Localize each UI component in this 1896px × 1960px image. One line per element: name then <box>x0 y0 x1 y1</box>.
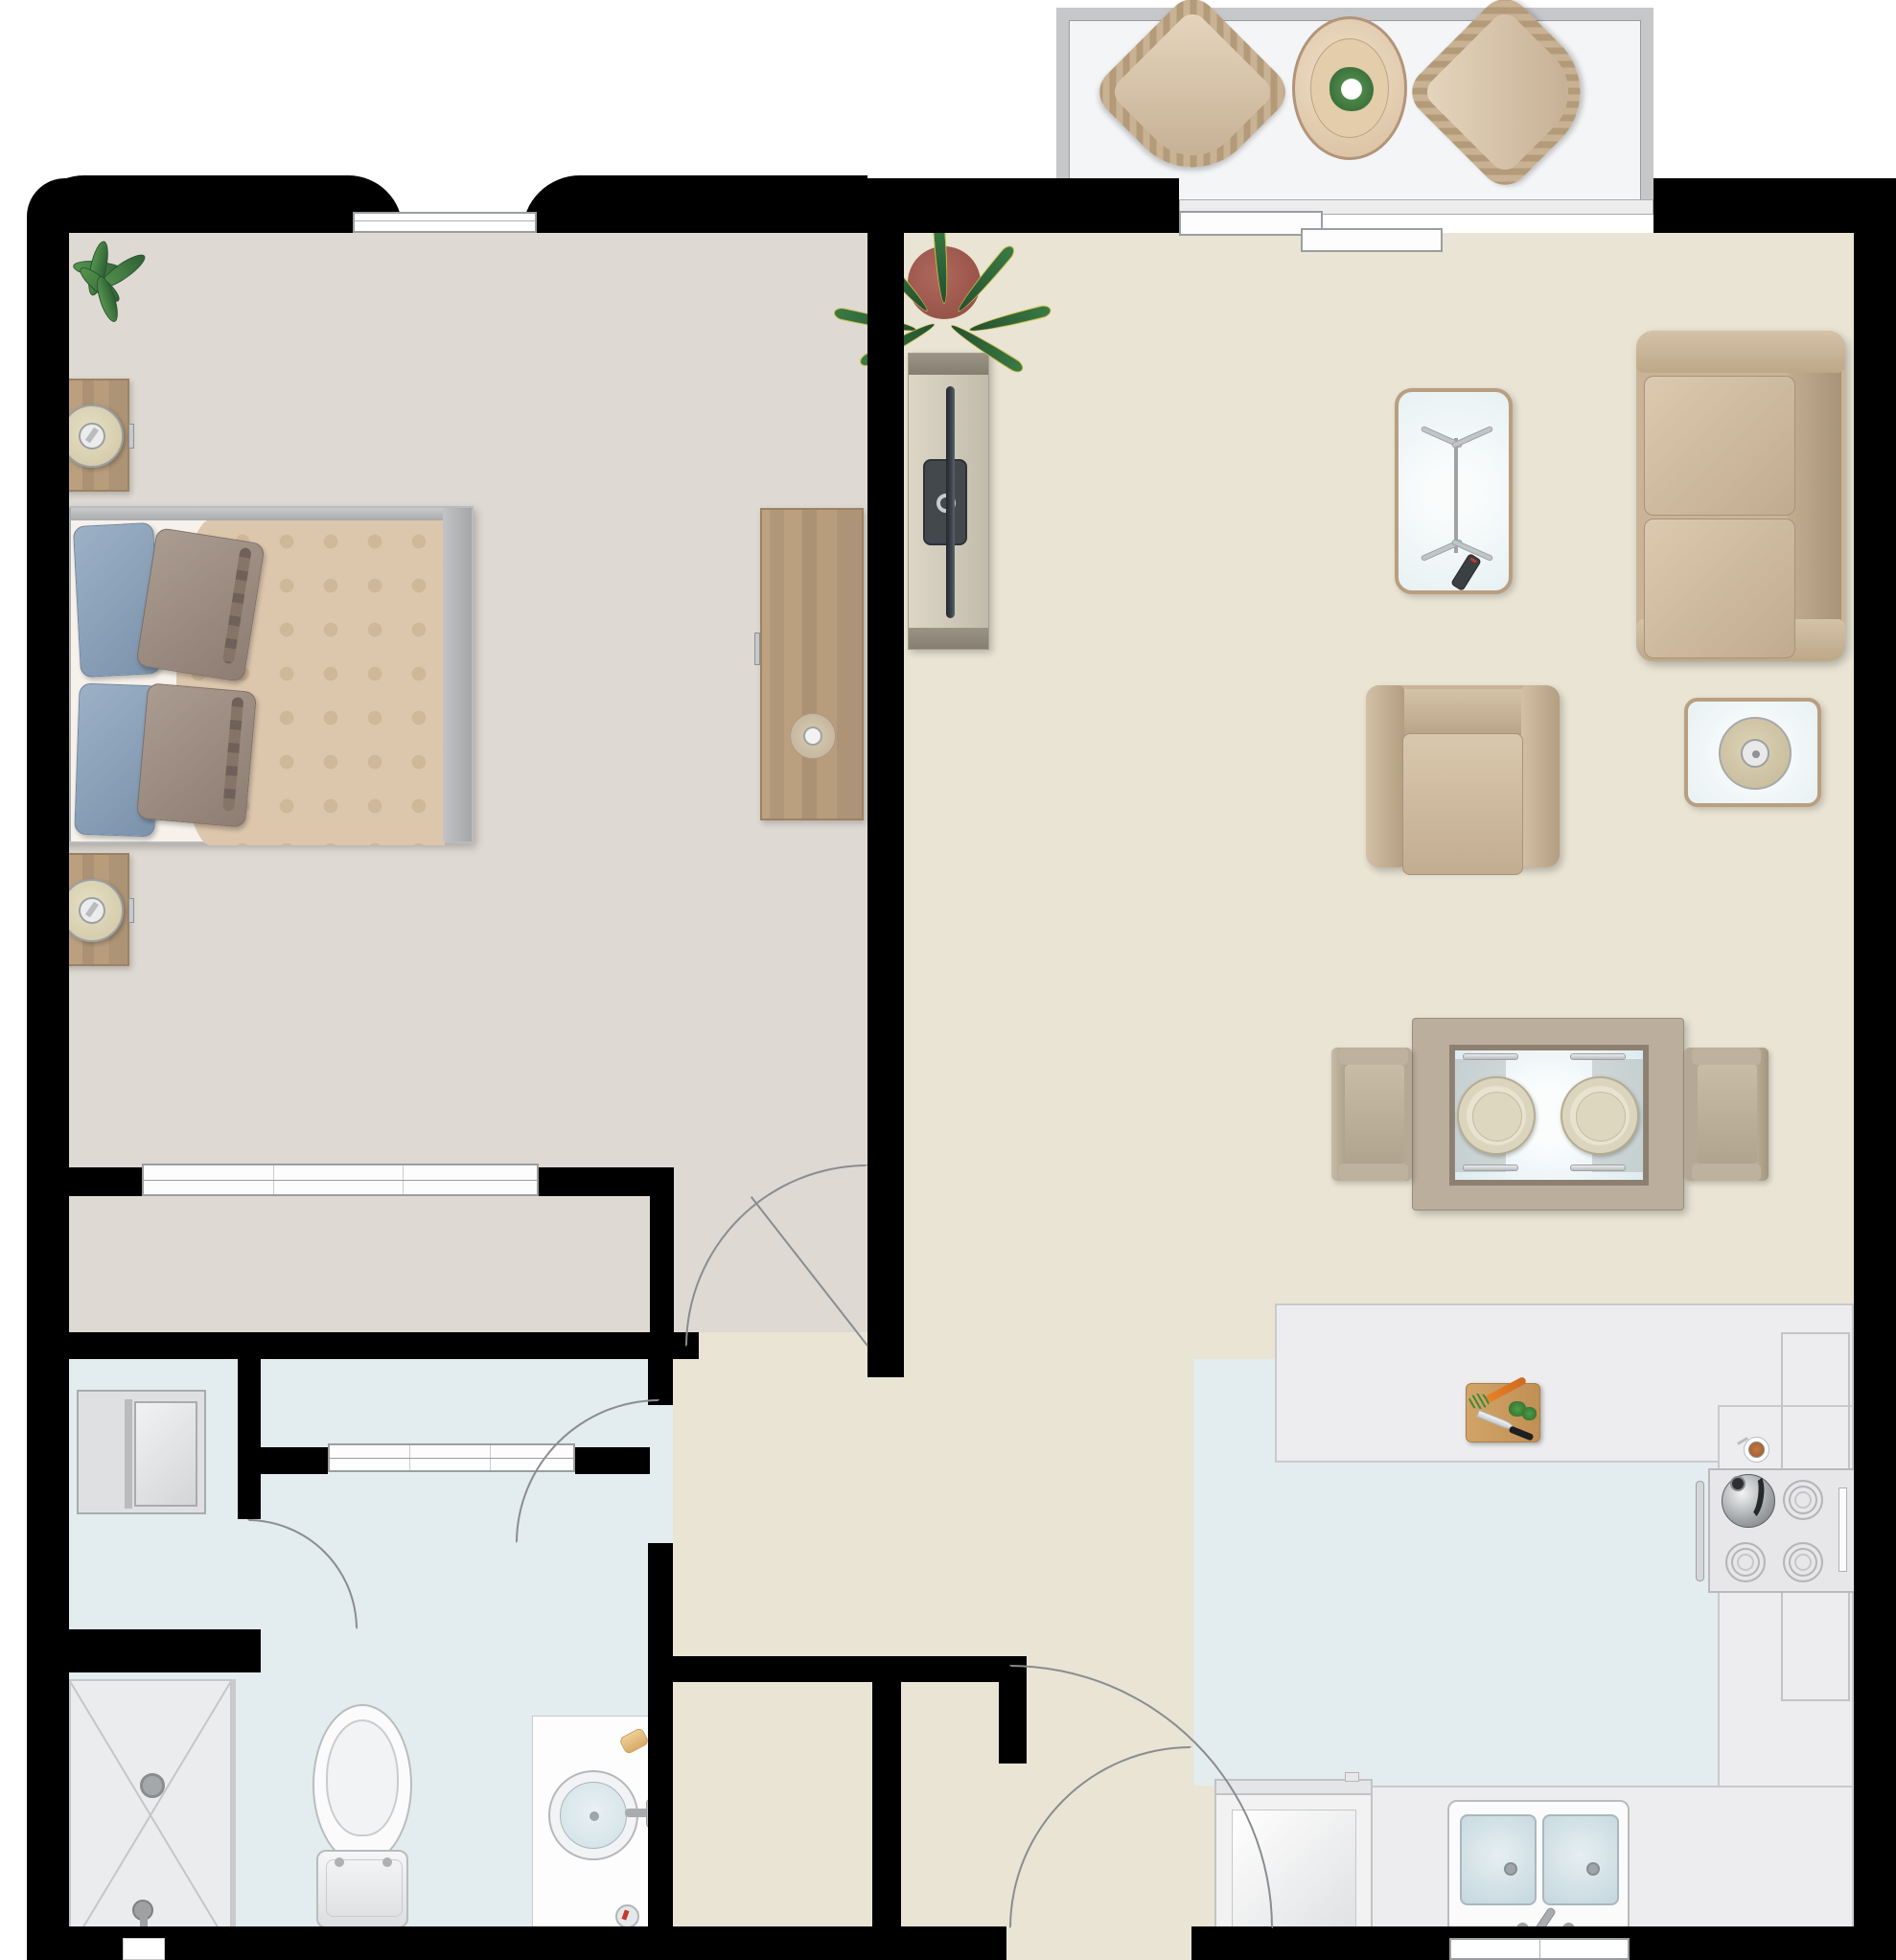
armchair-armrest <box>1366 685 1404 867</box>
dining-chair-right <box>1684 1048 1769 1181</box>
lamp-finial <box>1741 739 1769 768</box>
toilet-seat-hinge <box>335 1857 344 1867</box>
chair-armrest <box>1692 1164 1761 1181</box>
coffee-table <box>1395 388 1513 594</box>
toilet-seat <box>326 1719 399 1836</box>
sink-drain <box>1504 1862 1517 1876</box>
coffee-cup <box>1748 1441 1765 1458</box>
armchair-backrest <box>1385 689 1540 739</box>
wall-bedroom-living <box>867 178 904 1377</box>
lamp-finial <box>79 897 105 924</box>
knife <box>1570 1164 1626 1171</box>
wall-bathroom-east <box>648 1543 673 1950</box>
lamp-finial <box>79 423 105 450</box>
wall-north-bedroom <box>27 175 403 233</box>
vanity-basin <box>560 1782 627 1849</box>
wall-west <box>27 178 69 1960</box>
dresser-cup <box>803 726 822 746</box>
shower-glass-edge <box>232 1679 236 1950</box>
sofa-cushion <box>1644 519 1795 658</box>
patio-table <box>1292 16 1407 160</box>
kettle-lid <box>1730 1476 1746 1491</box>
table-lamp <box>60 404 124 468</box>
kitchen-window <box>1449 1938 1630 1960</box>
armchair-armrest <box>1521 685 1560 867</box>
sink-drain <box>1586 1862 1600 1876</box>
living-room-plant-pot <box>908 246 981 319</box>
sofa-backrest <box>1788 356 1841 636</box>
wall-north-bedroom <box>522 175 867 233</box>
pillow-taupe <box>136 682 257 827</box>
fork <box>1463 1053 1518 1060</box>
dresser <box>760 508 864 820</box>
washing-machine <box>77 1390 206 1514</box>
floor-plan <box>0 0 1896 1960</box>
wall-bathroom-east <box>648 1359 673 1405</box>
armchair <box>1366 685 1560 867</box>
toilet-seat-hinge <box>382 1857 392 1867</box>
chair-armrest <box>1692 1048 1761 1065</box>
shower-drain <box>140 1773 165 1798</box>
wall-entry-closet <box>673 1656 999 1682</box>
dresser-tray <box>790 713 836 759</box>
wall-south <box>27 1926 1006 1960</box>
washer-door <box>134 1401 197 1507</box>
burner <box>1783 1480 1823 1520</box>
bed-frame-rail <box>50 508 472 520</box>
wall-shower-north <box>27 1629 261 1672</box>
wall-north-living <box>904 178 1179 233</box>
wall-south <box>1191 1926 1449 1960</box>
soap-bar <box>618 1727 650 1755</box>
armchair-seat <box>1402 733 1523 875</box>
bathroom-vanity <box>532 1716 661 1950</box>
wall-entry-closet <box>872 1682 901 1950</box>
wall-bedroom-south <box>27 1332 699 1359</box>
kitchen-sink <box>1447 1800 1630 1948</box>
entry-doorway-floor <box>1006 1926 1191 1960</box>
knife <box>1463 1164 1518 1171</box>
chair-armrest <box>1339 1164 1408 1181</box>
broccoli-floret <box>1522 1407 1537 1420</box>
wall-bedroom-closet <box>27 1167 142 1196</box>
chair-armrest <box>1339 1048 1408 1065</box>
wall-east <box>1854 178 1896 1960</box>
bed-footboard <box>443 508 472 842</box>
chair-seat <box>1345 1065 1404 1164</box>
dining-table <box>1412 1018 1684 1211</box>
dishwasher-button <box>1345 1772 1359 1782</box>
chair-seat <box>1698 1065 1757 1164</box>
coffee-table-leg <box>1451 426 1493 449</box>
dresser-handle <box>754 633 760 665</box>
bedroom-plant <box>67 235 151 323</box>
coffee-table-leg <box>1454 438 1458 553</box>
sink-basin-right <box>1542 1814 1619 1905</box>
sofa-cushion <box>1644 376 1795 516</box>
side-table <box>1684 698 1821 807</box>
sofa <box>1636 331 1845 661</box>
balcony-sliding-door-panel <box>1301 228 1443 252</box>
shower-stall <box>69 1679 232 1950</box>
table-lamp <box>60 879 124 942</box>
dinner-plate <box>1561 1076 1639 1155</box>
range-handle <box>1696 1481 1704 1581</box>
wall-linen-closet <box>261 1447 328 1474</box>
oven-handle <box>1838 1487 1847 1572</box>
nightstand-handle <box>128 898 134 923</box>
dinner-plate <box>1457 1076 1536 1155</box>
wall-closet-east <box>650 1167 674 1359</box>
pillow-taupe <box>135 527 265 682</box>
toilet-bowl <box>312 1704 412 1865</box>
wall-laundry-closet <box>238 1332 261 1519</box>
fork <box>1570 1053 1626 1060</box>
dining-chair-left <box>1331 1048 1412 1181</box>
hallway-floor <box>673 1359 904 1950</box>
cutting-board <box>1466 1383 1540 1442</box>
toilet-tank <box>316 1850 408 1928</box>
shower-wall-notch <box>123 1938 165 1960</box>
tv-console <box>908 353 989 650</box>
range-cooktop <box>1708 1468 1857 1593</box>
carrot-greens <box>1468 1394 1490 1409</box>
toothbrush-cup <box>615 1904 639 1928</box>
burner <box>1783 1542 1823 1582</box>
bed <box>48 506 474 843</box>
dishwasher-handle <box>1216 1781 1371 1795</box>
washer-hinge <box>125 1399 132 1509</box>
coffee-cup-saucer <box>1744 1437 1769 1463</box>
console-end-cap <box>909 628 988 649</box>
chef-knife-handle <box>1509 1425 1535 1441</box>
sofa-armrest <box>1636 331 1845 373</box>
side-table-lamp <box>1719 717 1792 790</box>
tv-mount <box>923 459 967 545</box>
tv-screen <box>946 386 955 618</box>
bedroom-window <box>353 212 537 233</box>
centerpiece-flower <box>1341 79 1362 100</box>
bedroom-closet-sliding-doors <box>142 1164 539 1196</box>
console-end-cap <box>909 354 988 375</box>
nightstand-handle <box>128 424 134 449</box>
sink-basin-left <box>1460 1814 1537 1905</box>
wall-south <box>1630 1926 1896 1960</box>
vanity-drain <box>590 1811 599 1821</box>
burner <box>1725 1542 1766 1582</box>
